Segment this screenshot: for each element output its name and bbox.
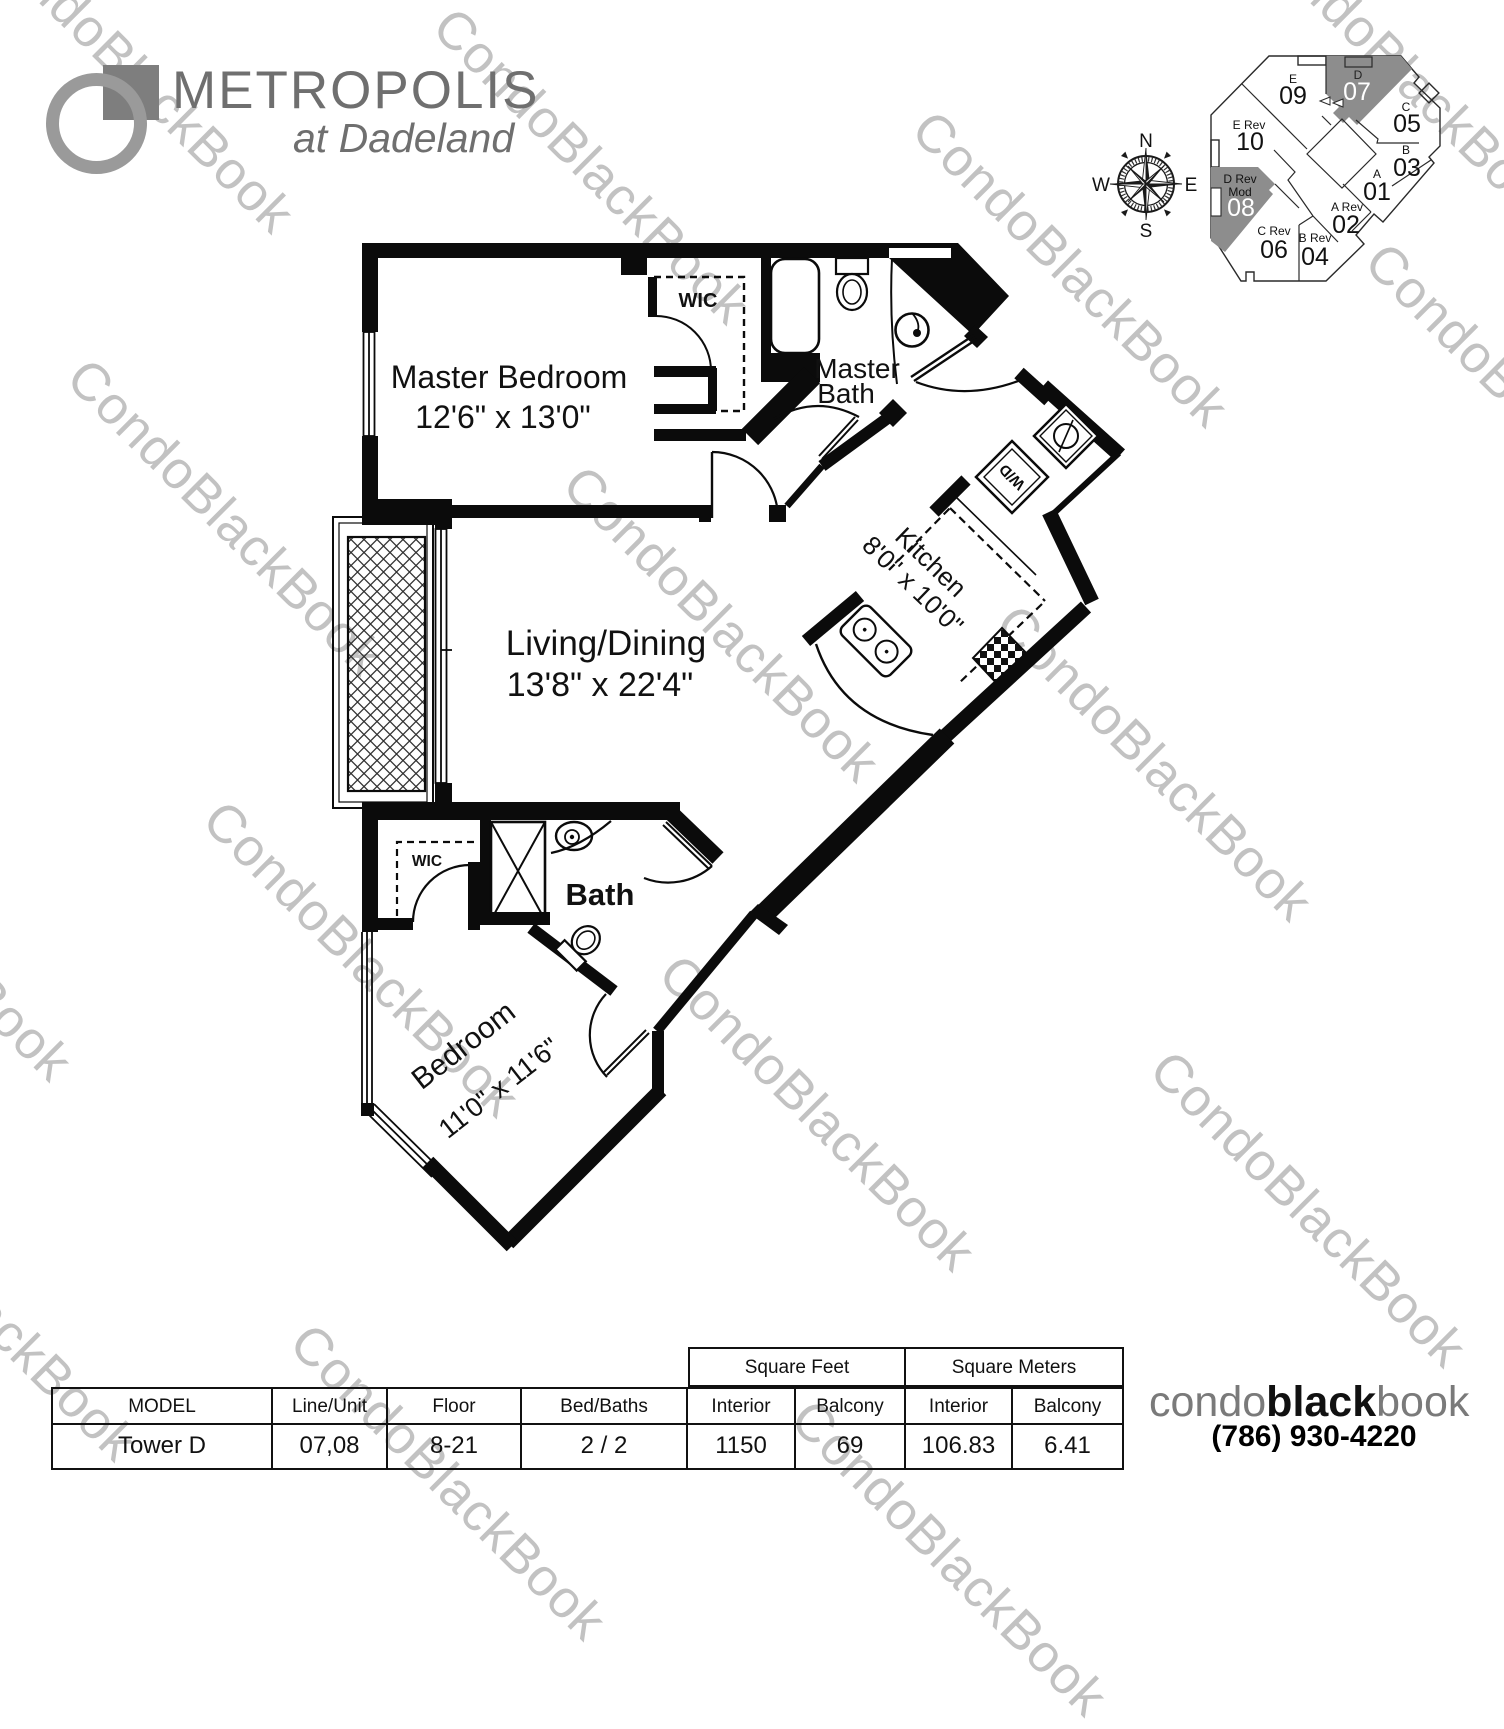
svg-text:07: 07 <box>1343 78 1371 106</box>
svg-text:W: W <box>1092 175 1110 196</box>
svg-text:Living/Dining: Living/Dining <box>506 624 706 663</box>
svg-text:N: N <box>1139 131 1153 152</box>
svg-text:03: 03 <box>1393 154 1421 182</box>
svg-text:E: E <box>1185 175 1198 196</box>
svg-text:06: 06 <box>1260 236 1288 264</box>
svg-text:WIC: WIC <box>412 853 442 870</box>
svg-text:Master Bedroom: Master Bedroom <box>391 359 628 395</box>
svg-text:Bath: Bath <box>566 877 635 912</box>
svg-text:10: 10 <box>1236 128 1264 156</box>
svg-text:08: 08 <box>1227 194 1255 222</box>
svg-text:12'6" x 13'0": 12'6" x 13'0" <box>415 399 591 435</box>
svg-text:13'8" x 22'4": 13'8" x 22'4" <box>507 666 693 704</box>
svg-text:02: 02 <box>1332 211 1360 239</box>
svg-text:WIC: WIC <box>679 290 718 312</box>
svg-text:05: 05 <box>1393 110 1421 138</box>
svg-text:04: 04 <box>1301 243 1329 271</box>
svg-text:D Rev: D Rev <box>1223 172 1256 186</box>
svg-text:09: 09 <box>1279 82 1307 110</box>
svg-text:S: S <box>1140 221 1153 242</box>
svg-text:01: 01 <box>1363 178 1391 206</box>
svg-text:Bath: Bath <box>817 378 875 409</box>
